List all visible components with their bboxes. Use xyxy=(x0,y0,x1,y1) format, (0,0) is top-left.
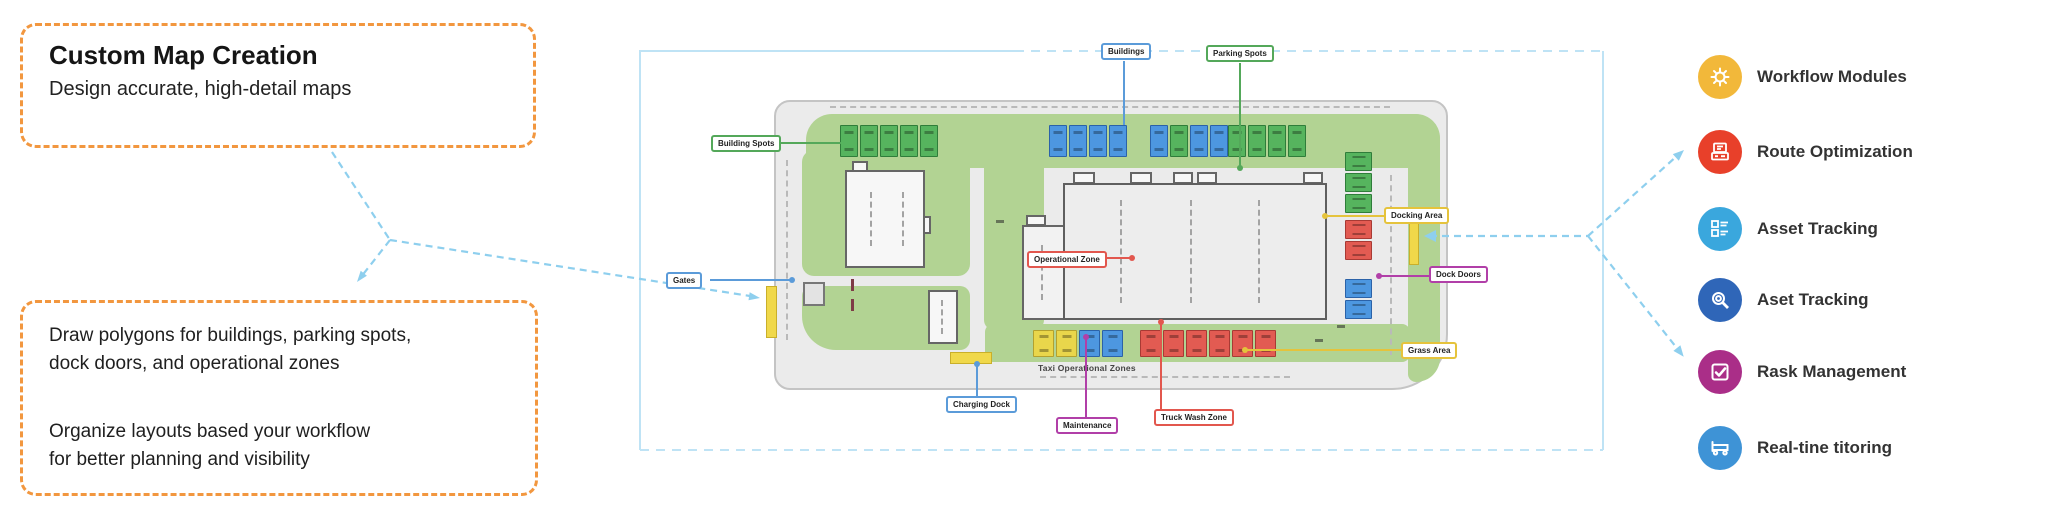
map-label-buildings: Buildings xyxy=(1101,43,1151,60)
grass-area-dot xyxy=(1242,347,1248,353)
buildings-spots-row xyxy=(1049,125,1127,157)
docking-area-dot xyxy=(1322,213,1328,219)
gates-dot xyxy=(789,277,795,283)
feature-rask-management: Rask Management xyxy=(1698,350,1906,394)
magnifier-icon xyxy=(1698,278,1742,322)
building-floor-mark xyxy=(941,300,943,334)
dock-doors-dot xyxy=(1376,273,1382,279)
maintenance-connector xyxy=(1085,337,1087,418)
building-narrow xyxy=(928,290,958,344)
gates-connector xyxy=(710,279,792,281)
road-lane-line xyxy=(830,106,1390,108)
grass-area-connector xyxy=(1245,349,1402,351)
charging-dock-connector xyxy=(976,364,978,397)
feature-aset-tracking: Aset Tracking xyxy=(1698,278,1869,322)
description-line: dock doors, and operational zones xyxy=(49,353,339,375)
map-label-grass-area: Grass Area xyxy=(1401,342,1457,359)
feature-label: Aset Tracking xyxy=(1757,290,1869,310)
feature-label: Asset Tracking xyxy=(1757,219,1878,239)
map-label-docking-area: Docking Area xyxy=(1384,207,1449,224)
infographic-canvas: Custom Map Creation Design accurate, hig… xyxy=(0,0,2048,512)
feature-label: Real-tine titoring xyxy=(1757,438,1892,458)
gate-left xyxy=(766,286,777,338)
operational-zone-dot xyxy=(1129,255,1135,261)
ground-mark xyxy=(1315,339,1323,342)
gate-right xyxy=(1409,223,1419,265)
building-bump xyxy=(923,216,931,234)
description-line: Draw polygons for buildings, parking spo… xyxy=(49,325,411,347)
warehouse-annex xyxy=(1022,225,1065,320)
description-line: Organize layouts based your workflow xyxy=(49,421,370,443)
charging-dock-dot xyxy=(974,361,980,367)
mixed-spots-row xyxy=(1150,125,1228,157)
feature-asset-tracking: Asset Tracking xyxy=(1698,207,1878,251)
feature-label: Route Optimization xyxy=(1757,142,1913,162)
feature-route-optimization: Route Optimization xyxy=(1698,130,1913,174)
dock-doors-connector xyxy=(1379,275,1430,277)
map-label-maintenance: Maintenance xyxy=(1056,417,1118,434)
truck-wash-dot xyxy=(1158,319,1164,325)
dock-spots-column xyxy=(1345,152,1372,319)
map-label-dock-doors: Dock Doors xyxy=(1429,266,1488,283)
page-title: Custom Map Creation xyxy=(49,40,318,71)
description-box: Draw polygons for buildings, parking spo… xyxy=(20,300,538,496)
road-lane-line xyxy=(786,160,788,340)
road-lane-line xyxy=(1040,376,1290,378)
gate-bottom xyxy=(950,352,992,364)
map-label-parking-spots: Parking Spots xyxy=(1206,45,1274,62)
buildings-connector xyxy=(1123,61,1125,125)
docking-area-connector xyxy=(1325,215,1385,217)
check-square-icon xyxy=(1698,350,1742,394)
description-line: for better planning and visibility xyxy=(49,449,310,471)
maintenance-dot xyxy=(1083,334,1089,340)
building-small xyxy=(845,170,925,268)
gear-icon xyxy=(1698,55,1742,99)
guard-hut xyxy=(803,282,825,306)
map-label-charging-dock: Charging Dock xyxy=(946,396,1017,413)
title-box: Custom Map Creation Design accurate, hig… xyxy=(20,23,536,148)
parking-spots-connector xyxy=(1239,63,1241,168)
ground-tick xyxy=(851,279,854,291)
parking-spots-dot xyxy=(1237,165,1243,171)
charging-spots-row xyxy=(1033,330,1077,357)
page-subtitle: Design accurate, high-detail maps xyxy=(49,78,351,101)
ground-tick xyxy=(851,299,854,311)
ground-mark xyxy=(1337,325,1345,328)
building-floor-mark xyxy=(870,192,872,246)
map-label-building-spots: Building Spots xyxy=(711,135,781,152)
hall-lane-mark xyxy=(1258,200,1260,303)
map-label-gates: Gates xyxy=(666,272,702,289)
building-floor-mark xyxy=(902,192,904,246)
feature-label: Workflow Modules xyxy=(1757,67,1907,87)
truck-icon xyxy=(1698,426,1742,470)
ground-mark xyxy=(996,220,1004,223)
feature-workflow-modules: Workflow Modules xyxy=(1698,55,1907,99)
feature-real-tine-titoring: Real-tine titoring xyxy=(1698,426,1892,470)
feature-label: Rask Management xyxy=(1757,362,1906,382)
truck-wash-connector xyxy=(1160,322,1162,410)
route-device-icon xyxy=(1698,130,1742,174)
clipboard-list-icon xyxy=(1698,207,1742,251)
map-label-truck-wash-zone: Truck Wash Zone xyxy=(1154,409,1234,426)
map-label-operational-zone: Operational Zone xyxy=(1027,251,1107,268)
hall-lane-mark xyxy=(1120,200,1122,303)
road-lane-line xyxy=(1390,175,1392,355)
building-spots-row xyxy=(840,125,938,157)
hall-lane-mark xyxy=(1190,200,1192,303)
